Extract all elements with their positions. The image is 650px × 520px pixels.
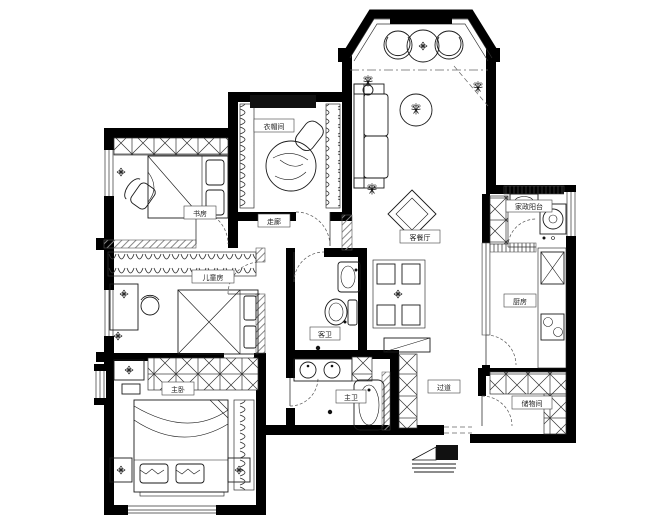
svg-text:过道: 过道 bbox=[437, 383, 451, 392]
svg-text:家政阳台: 家政阳台 bbox=[515, 202, 543, 211]
entry-opening bbox=[444, 427, 472, 433]
cooktop bbox=[541, 314, 564, 340]
room-label-guest-bath: 客卫 bbox=[310, 327, 340, 340]
toilet bbox=[325, 299, 357, 325]
round-rug bbox=[400, 94, 432, 126]
left-wall-pier bbox=[96, 352, 104, 362]
cabinet-row bbox=[490, 372, 566, 394]
bedroom-bottom-window bbox=[128, 503, 216, 517]
dining-set bbox=[373, 260, 425, 328]
svg-text:主卫: 主卫 bbox=[344, 393, 358, 402]
bench bbox=[384, 338, 430, 352]
bath-cabinet bbox=[352, 357, 372, 381]
svg-text:储物间: 储物间 bbox=[522, 399, 543, 408]
kids-room-furniture bbox=[108, 252, 258, 354]
room-label-cloakroom: 衣帽间 bbox=[254, 119, 294, 132]
balcony-furniture bbox=[350, 30, 488, 93]
guest-bath-door bbox=[294, 252, 324, 282]
wardrobe-rail bbox=[326, 104, 340, 208]
floor-plan-drawing: 衣帽间 走廊 书房 儿童房 主卧 客卫 主卫 客餐厅 bbox=[0, 0, 650, 520]
armchair bbox=[121, 176, 157, 211]
living-dining-furniture bbox=[354, 66, 488, 328]
round-chair bbox=[384, 31, 412, 59]
room-label-hallway: 过道 bbox=[428, 380, 460, 393]
curtain-box bbox=[390, 16, 452, 24]
cloakroom-furniture bbox=[240, 95, 340, 208]
dresser bbox=[114, 360, 144, 380]
floor-drain bbox=[316, 346, 320, 350]
master-bath-door bbox=[290, 378, 318, 406]
svg-text:衣帽间: 衣帽间 bbox=[264, 122, 285, 131]
stool bbox=[122, 384, 140, 394]
bay-window-glazing bbox=[350, 16, 492, 61]
study-window bbox=[102, 150, 116, 196]
room-label-master-bedroom: 主卧 bbox=[162, 382, 194, 395]
bedroom-side-window bbox=[94, 364, 106, 405]
svg-text:书房: 书房 bbox=[193, 209, 207, 218]
wardrobe-rail bbox=[234, 400, 254, 490]
room-label-living-dining: 客餐厅 bbox=[400, 230, 440, 243]
floor-drain bbox=[328, 410, 332, 414]
plant-icon bbox=[368, 184, 377, 195]
sink bbox=[338, 262, 360, 292]
tall-cabinet bbox=[490, 196, 508, 244]
svg-text:客餐厅: 客餐厅 bbox=[410, 233, 431, 242]
entry-marker-icon bbox=[412, 445, 458, 472]
kitchen-door bbox=[486, 335, 516, 365]
room-label-corridor: 走廊 bbox=[258, 214, 290, 227]
svg-text:儿童房: 儿童房 bbox=[203, 273, 224, 282]
kitchen-fixtures bbox=[538, 248, 566, 368]
flower-icon bbox=[117, 168, 125, 176]
double-bed bbox=[134, 400, 228, 496]
left-wall-pier bbox=[96, 238, 104, 250]
kids-bed bbox=[178, 290, 258, 354]
shoe-cabinet bbox=[399, 354, 417, 428]
kitchen-glass-wall bbox=[482, 243, 490, 335]
svg-text:厨房: 厨房 bbox=[513, 297, 527, 306]
bathtub bbox=[354, 380, 384, 430]
sofa bbox=[354, 84, 388, 188]
kids-window bbox=[102, 290, 116, 336]
closet bbox=[114, 138, 228, 155]
room-label-utility-balcony: 家政阳台 bbox=[506, 200, 552, 212]
storage-door bbox=[482, 396, 512, 426]
counter bbox=[538, 248, 566, 368]
svg-text:主卧: 主卧 bbox=[171, 385, 185, 394]
shelf bbox=[250, 95, 316, 108]
room-label-master-bath: 主卫 bbox=[336, 390, 366, 403]
wardrobe-rail bbox=[240, 104, 254, 208]
fridge bbox=[541, 252, 564, 284]
room-label-study: 书房 bbox=[184, 206, 216, 219]
cloakroom-door bbox=[296, 212, 330, 246]
room-label-storage: 储物间 bbox=[512, 396, 552, 409]
utility-pass-window bbox=[490, 243, 536, 252]
svg-text:走廊: 走廊 bbox=[267, 217, 281, 226]
desk-chair bbox=[141, 295, 159, 315]
master-bedroom-furniture bbox=[110, 358, 258, 496]
tile-wall bbox=[382, 372, 390, 430]
svg-text:客卫: 客卫 bbox=[318, 330, 332, 339]
double-vanity bbox=[294, 359, 352, 381]
room-label-kids-room: 儿童房 bbox=[192, 270, 234, 283]
room-label-kitchen: 厨房 bbox=[504, 294, 536, 307]
floor-plan: 衣帽间 走廊 书房 儿童房 主卧 客卫 主卫 客餐厅 bbox=[0, 0, 650, 520]
